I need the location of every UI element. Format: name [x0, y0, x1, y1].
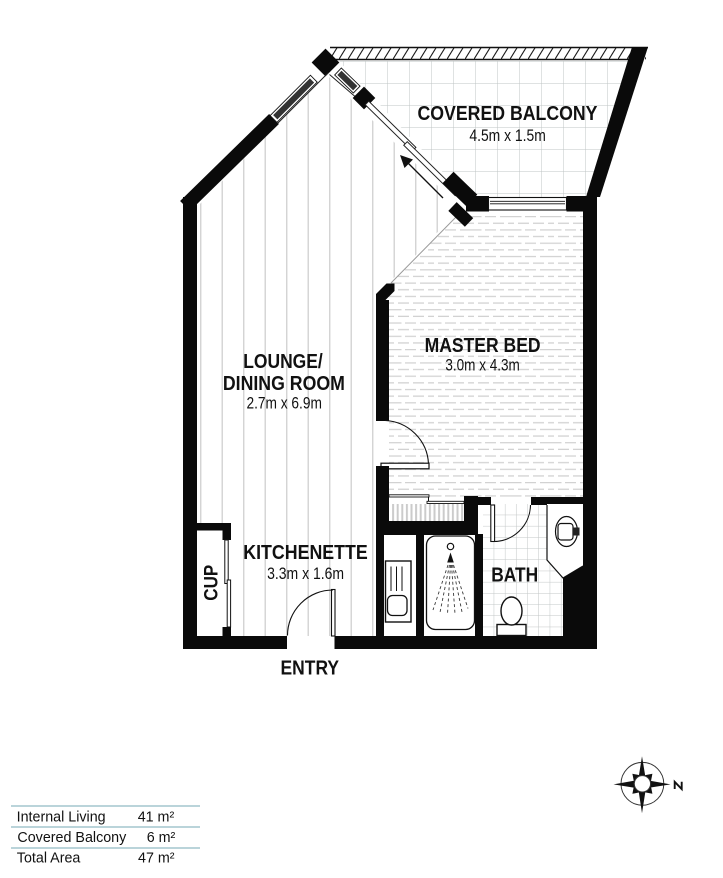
svg-text:DINING ROOM: DINING ROOM — [223, 373, 345, 395]
svg-text:Total Area: Total Area — [17, 851, 81, 867]
svg-text:47 m²: 47 m² — [138, 851, 175, 867]
svg-text:BATH: BATH — [491, 565, 538, 587]
svg-text:MASTER BED: MASTER BED — [425, 335, 541, 357]
svg-text:CUP: CUP — [202, 564, 223, 600]
svg-text:Covered Balcony: Covered Balcony — [17, 830, 127, 846]
svg-text:Internal Living: Internal Living — [17, 810, 106, 826]
svg-text:41 m²: 41 m² — [138, 810, 175, 826]
svg-text:3.3m x 1.6m: 3.3m x 1.6m — [267, 565, 344, 583]
svg-text:4.5m x 1.5m: 4.5m x 1.5m — [469, 127, 546, 145]
svg-text:COVERED BALCONY: COVERED BALCONY — [418, 103, 599, 125]
svg-text:ENTRY: ENTRY — [281, 658, 340, 680]
svg-text:6 m²: 6 m² — [147, 830, 176, 846]
svg-text:3.0m x 4.3m: 3.0m x 4.3m — [445, 357, 520, 375]
svg-text:LOUNGE/: LOUNGE/ — [243, 351, 323, 373]
svg-text:KITCHENETTE: KITCHENETTE — [243, 542, 368, 564]
svg-text:2.7m x 6.9m: 2.7m x 6.9m — [246, 395, 322, 413]
